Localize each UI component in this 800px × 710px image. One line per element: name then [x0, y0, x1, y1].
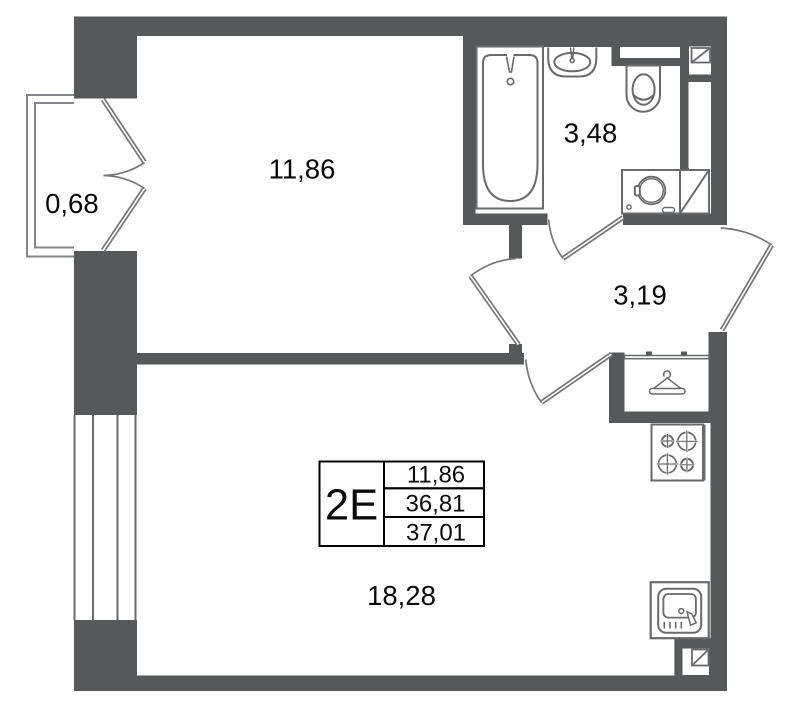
- svg-text:18,28: 18,28: [367, 580, 436, 611]
- svg-text:11,86: 11,86: [407, 461, 465, 488]
- svg-text:11,86: 11,86: [269, 154, 336, 185]
- svg-text:2E: 2E: [325, 482, 378, 530]
- svg-text:3,48: 3,48: [564, 118, 618, 149]
- svg-text:37,01: 37,01: [406, 520, 466, 547]
- svg-text:3,19: 3,19: [613, 280, 667, 311]
- svg-text:0,68: 0,68: [45, 188, 99, 219]
- svg-text:36,81: 36,81: [405, 491, 465, 518]
